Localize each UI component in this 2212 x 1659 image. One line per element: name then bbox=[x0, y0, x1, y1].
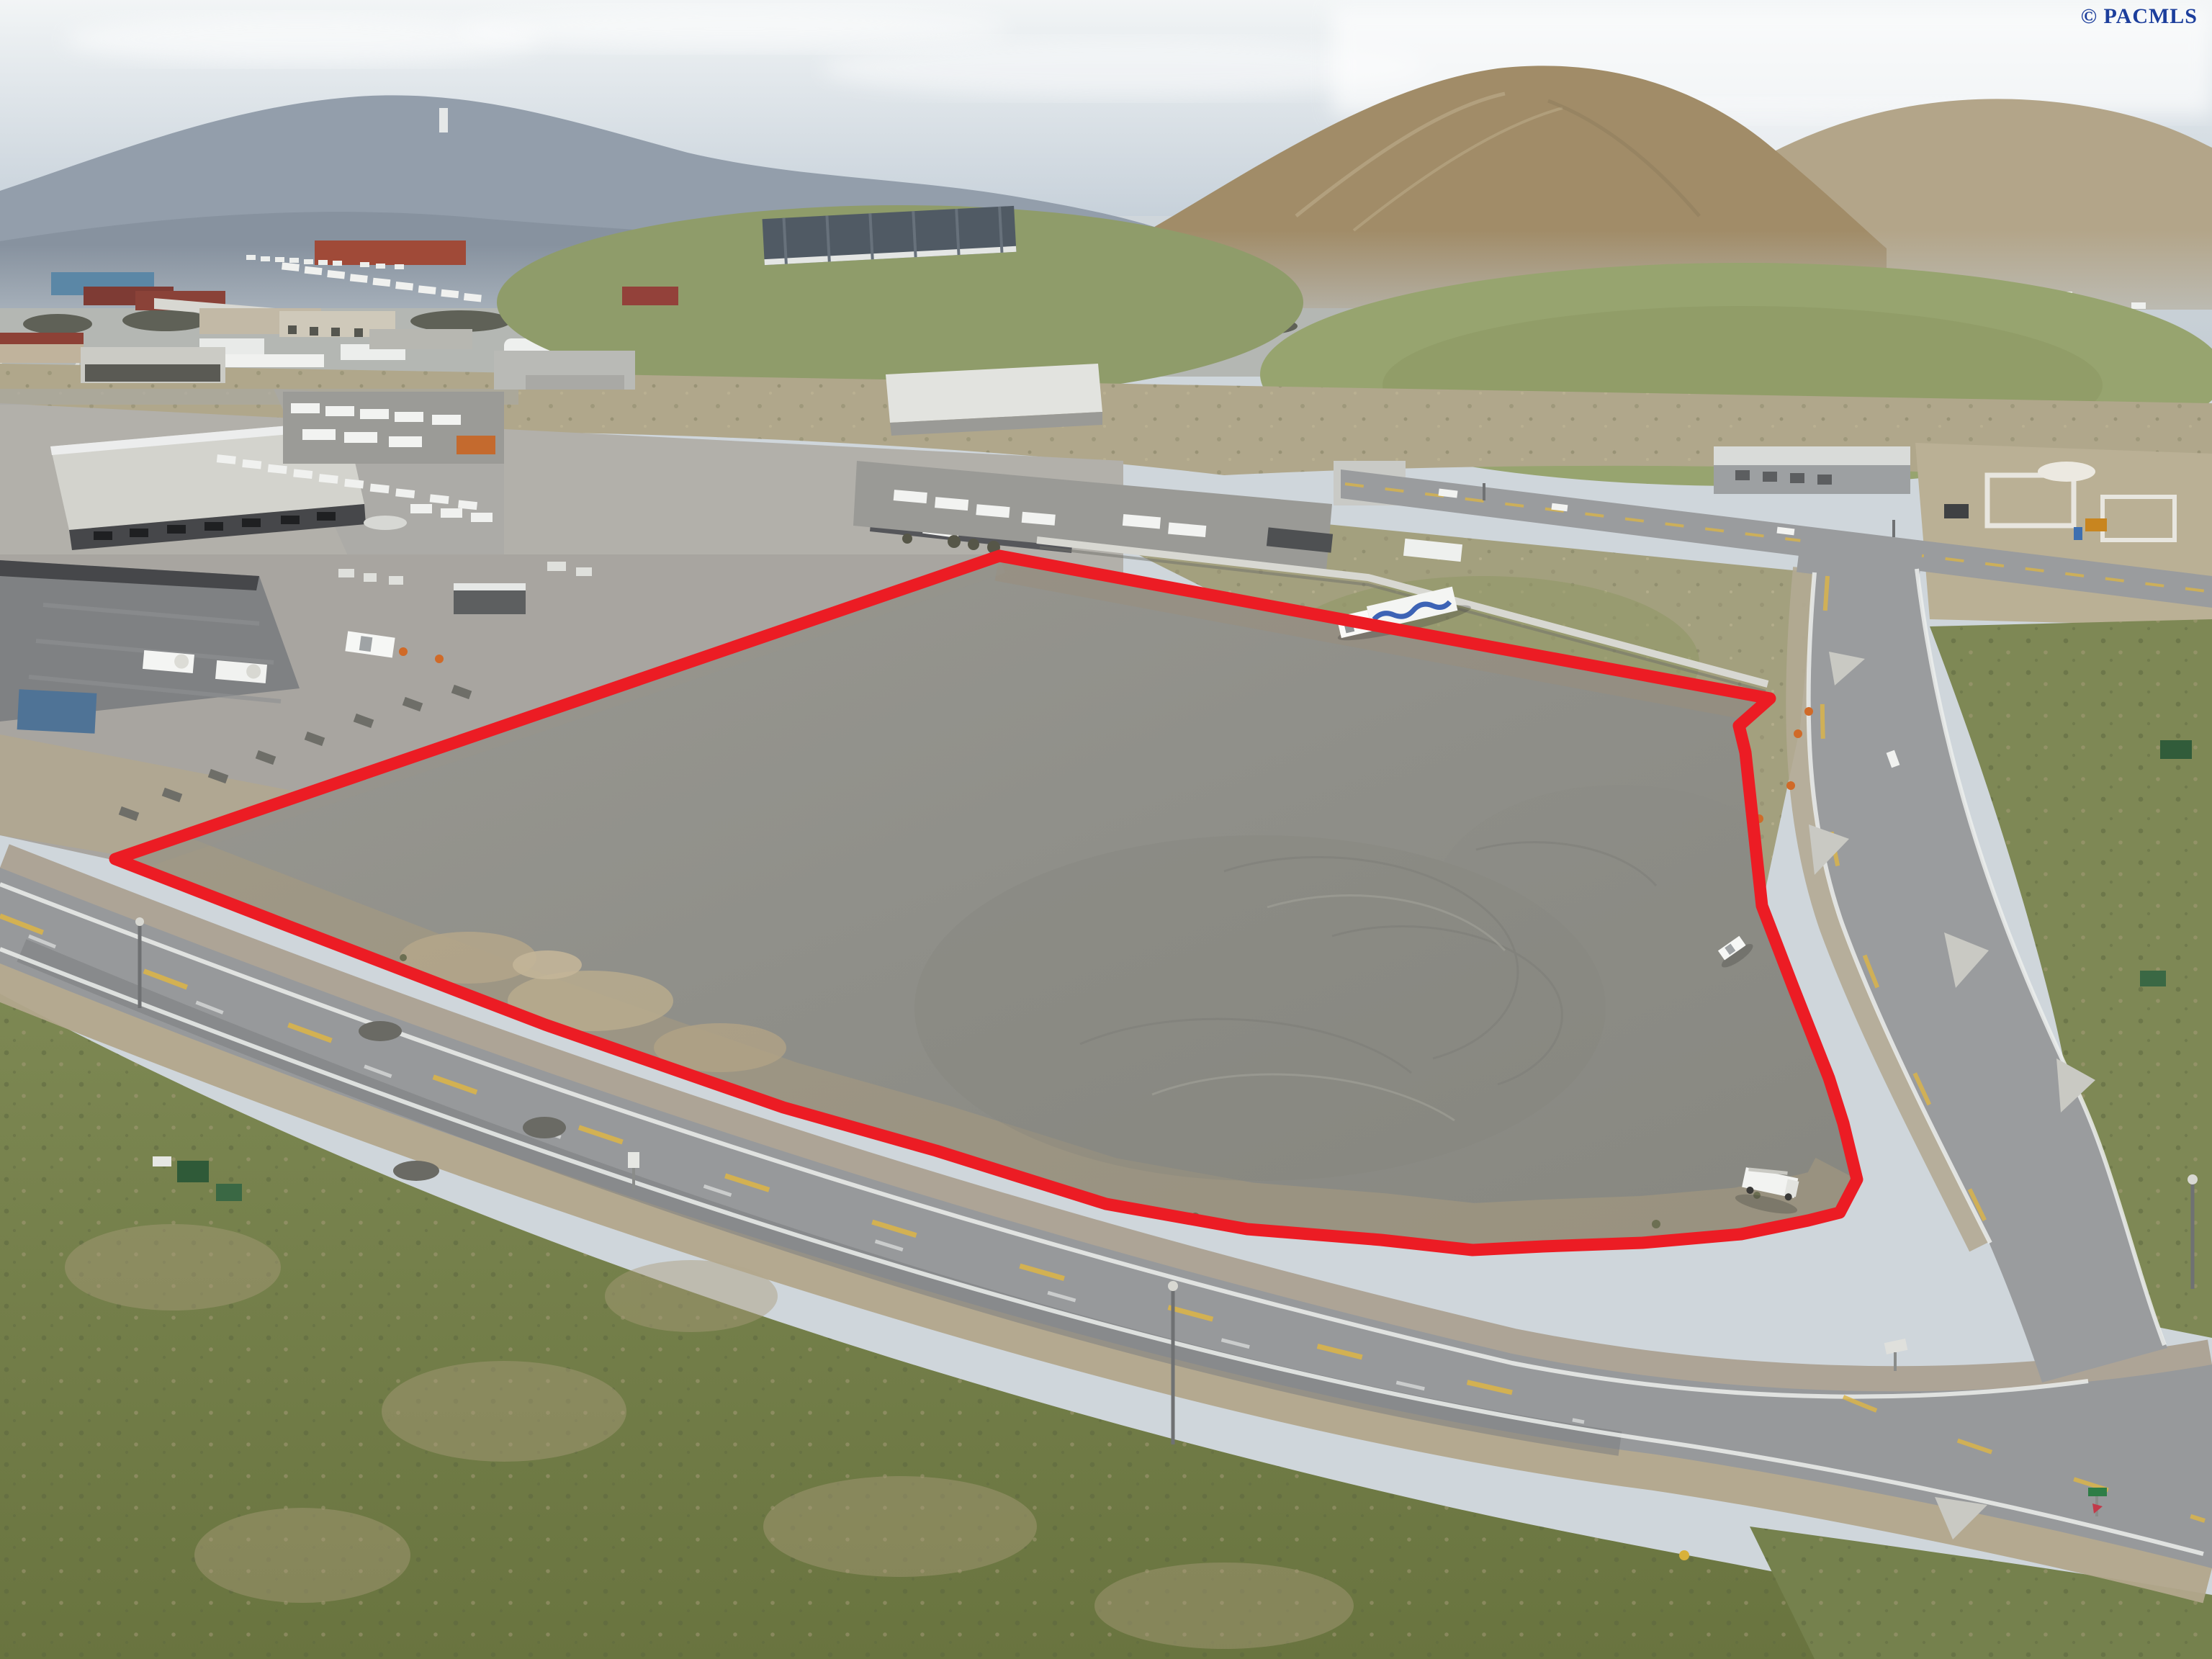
rv-roof-stripe bbox=[454, 583, 526, 590]
porta-potty bbox=[2074, 527, 2082, 540]
aerial-photo: © PACMLS bbox=[0, 0, 2212, 1659]
aerial-photo-stage: © PACMLS bbox=[0, 0, 2212, 1659]
truck-yard bbox=[283, 392, 504, 464]
traffic-cone bbox=[399, 647, 408, 656]
blue-container bbox=[17, 689, 97, 734]
red-barn-building bbox=[622, 287, 678, 305]
street-light-head bbox=[135, 917, 144, 926]
boat bbox=[364, 516, 407, 530]
repair-shop bbox=[81, 347, 225, 383]
small-grey-building bbox=[526, 375, 624, 390]
grey-warehouse-north bbox=[1714, 446, 1910, 494]
cloud bbox=[65, 15, 540, 64]
gravel-pile bbox=[2038, 462, 2095, 482]
distant-water-tower bbox=[439, 108, 448, 132]
red-roof-house bbox=[0, 333, 84, 363]
orange-container bbox=[457, 436, 495, 454]
street-light-head bbox=[1168, 1281, 1178, 1291]
grey-long-building bbox=[369, 329, 472, 349]
cloud bbox=[461, 7, 1008, 50]
street-light-head bbox=[2188, 1174, 2198, 1184]
excavator bbox=[1944, 504, 1969, 518]
orange-machine bbox=[2085, 518, 2107, 531]
green-utility-box bbox=[2140, 971, 2166, 986]
white-warehouse bbox=[886, 364, 1102, 436]
watermark-text: © PACMLS bbox=[2081, 4, 2198, 28]
traffic-cone bbox=[435, 655, 444, 663]
fire-hydrant bbox=[1679, 1550, 1689, 1560]
green-utility-box bbox=[2160, 740, 2192, 759]
